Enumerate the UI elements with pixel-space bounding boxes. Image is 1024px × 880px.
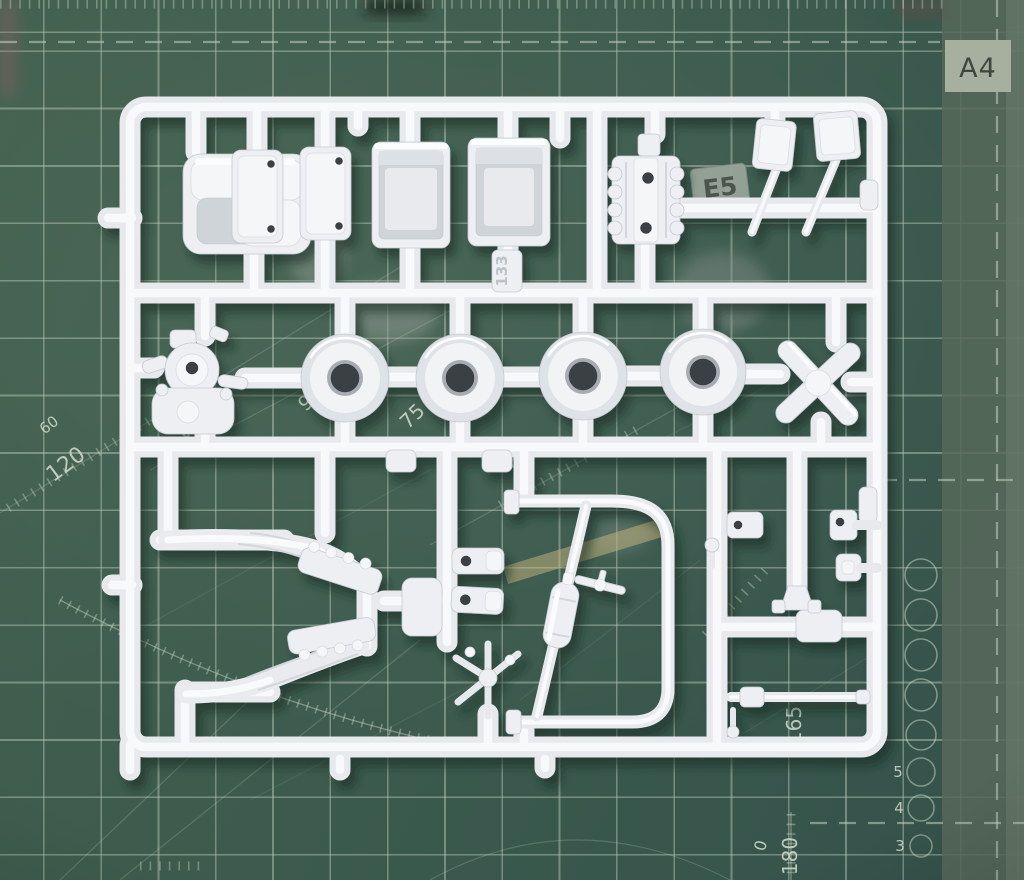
part-tray-1 (232, 150, 283, 243)
mat-label-60a: 60 (36, 412, 62, 438)
part-carburetor (141, 325, 249, 434)
mat-corner-tint (0, 0, 16, 96)
part-axle (731, 687, 870, 707)
part-clevis-2 (451, 586, 504, 615)
part-pin-2 (727, 710, 739, 738)
mat-dark-mark-2 (898, 0, 944, 16)
mat-label-a4: A4 (959, 53, 997, 84)
part-distributor (456, 644, 518, 716)
part-number-tag-133: 133 (492, 250, 522, 292)
part-clevis-1 (452, 548, 504, 574)
part-tray-2 (300, 147, 351, 240)
mat-right-edge (1006, 0, 1024, 880)
mat-circle-column (905, 559, 937, 857)
photo-stage: A4 60 120 105 90 75 60 165 180 0 5 4 3 (0, 0, 1024, 880)
mat-label-180: 180 (778, 837, 802, 875)
part-box-2 (468, 138, 550, 246)
part-exhaust-header-1 (168, 533, 386, 596)
mat-label-4: 4 (894, 799, 904, 817)
part-wheel-3 (528, 321, 637, 430)
photo-canvas: A4 60 120 105 90 75 60 165 180 0 5 4 3 (0, 0, 1024, 880)
mat-label-0: 0 (750, 838, 771, 853)
part-number-tag-133-text: 133 (493, 255, 511, 286)
part-t-foot (772, 586, 821, 613)
part-bracket-1 (727, 512, 763, 538)
mat-label-3: 3 (895, 837, 905, 855)
sprue: 133 (108, 107, 894, 770)
mat-label-5: 5 (893, 763, 903, 781)
part-t-handle (573, 564, 629, 597)
part-box-1 (372, 142, 450, 248)
part-engine-block (608, 134, 684, 244)
part-wheel-4 (650, 319, 757, 426)
